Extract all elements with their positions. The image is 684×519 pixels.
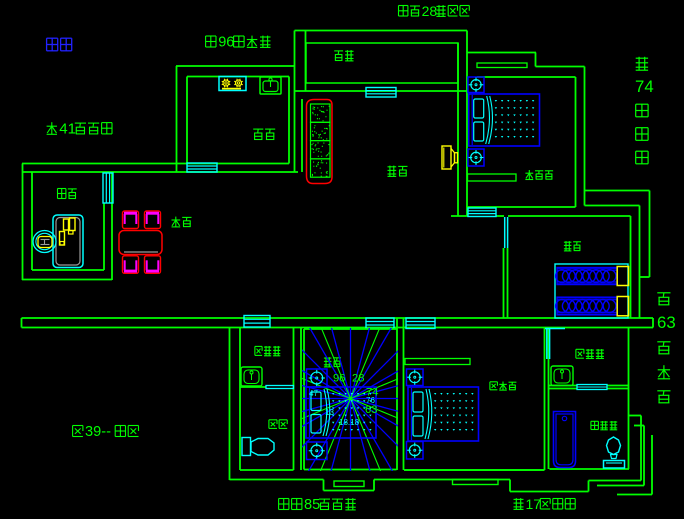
svg-text:47: 47 — [309, 389, 318, 398]
svg-text:28: 28 — [352, 373, 364, 385]
svg-text:63: 63 — [657, 313, 676, 332]
svg-text:76: 76 — [366, 396, 375, 405]
svg-text:74: 74 — [635, 77, 654, 96]
svg-text:41: 41 — [59, 121, 76, 138]
svg-text:28: 28 — [422, 3, 438, 19]
svg-text:17: 17 — [526, 496, 542, 512]
svg-text:39--: 39-- — [85, 424, 111, 440]
svg-text:63: 63 — [365, 404, 377, 416]
svg-text:96: 96 — [218, 35, 234, 51]
svg-text:13: 13 — [325, 408, 334, 417]
svg-text:96: 96 — [333, 373, 345, 385]
svg-text:85: 85 — [304, 497, 320, 513]
svg-text:18.18: 18.18 — [339, 418, 360, 427]
